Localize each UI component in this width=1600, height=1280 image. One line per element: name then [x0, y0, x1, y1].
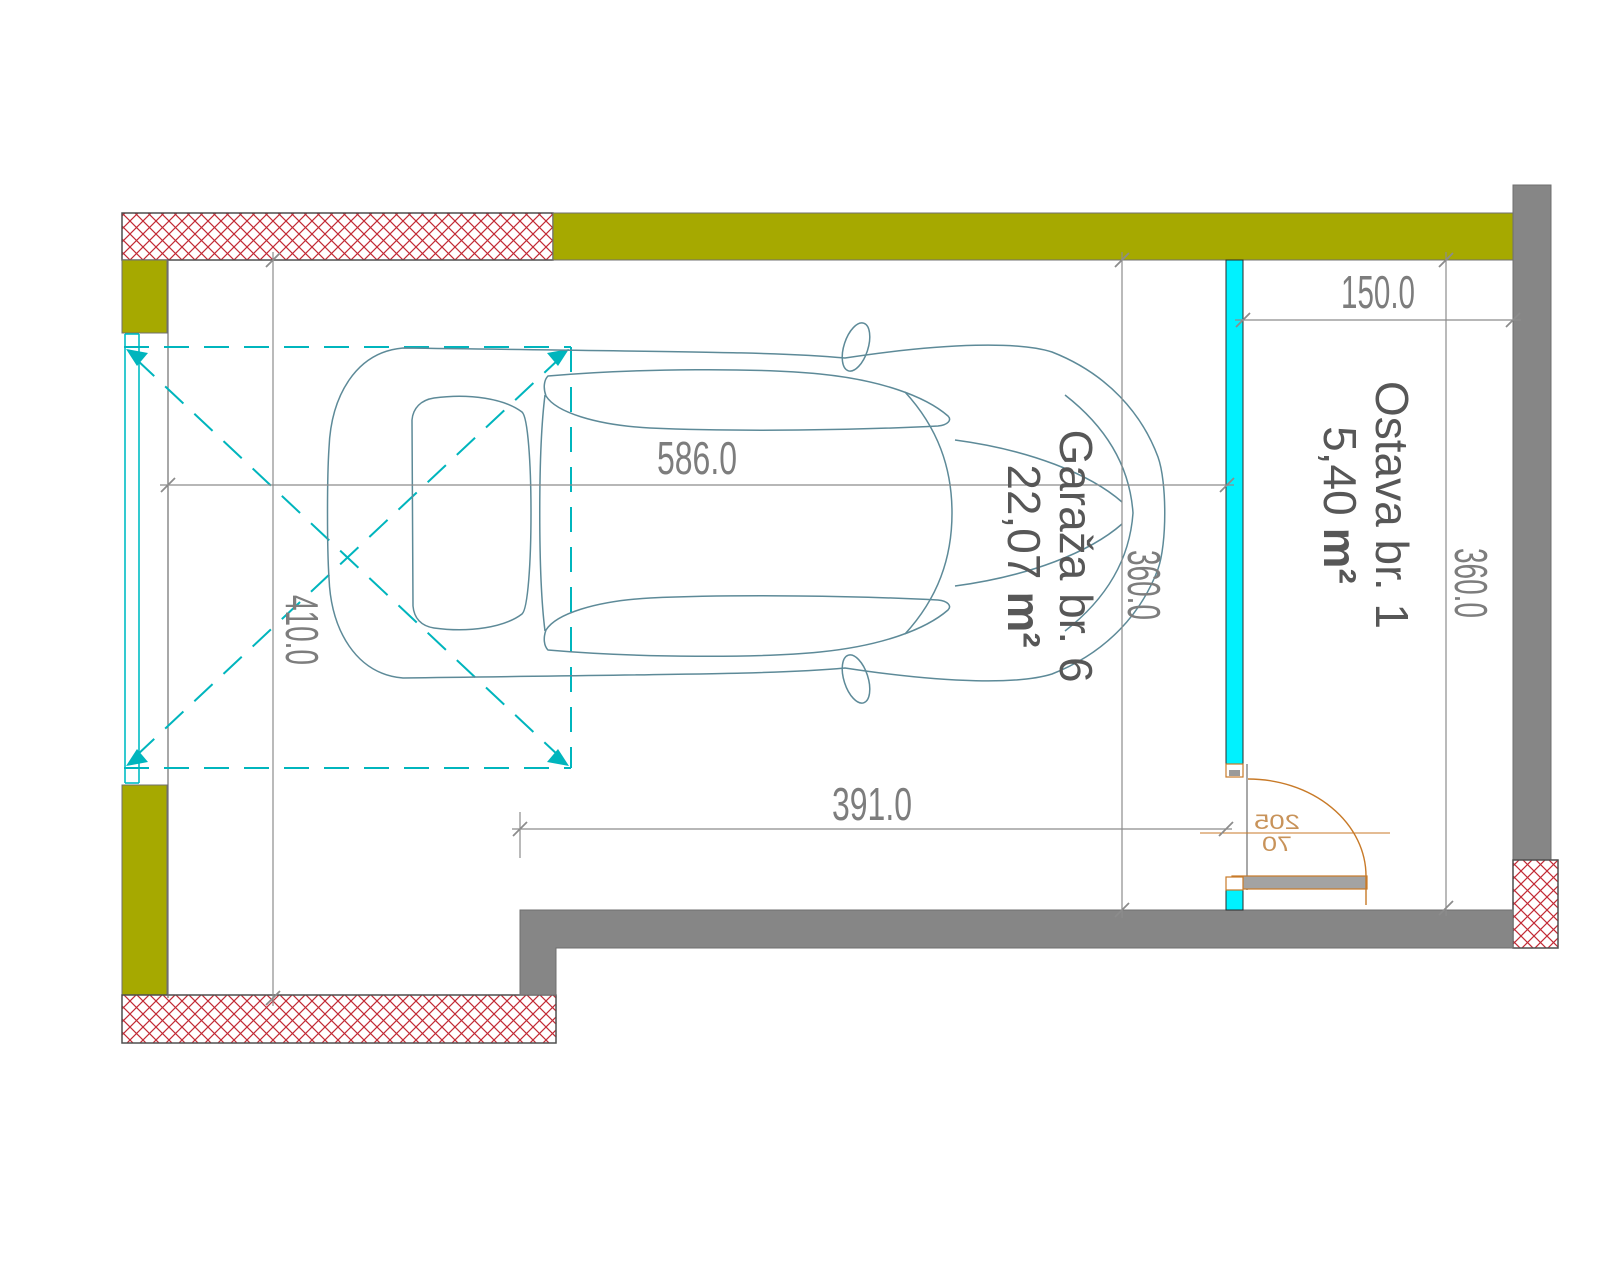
- parking-arrow-bottom-right: [547, 749, 569, 766]
- parking-arrow-top-right: [547, 349, 569, 366]
- dim-label-garage-length: 586.0: [657, 432, 737, 484]
- door-frame-block-bottom: [1226, 877, 1243, 890]
- parking-space-marking: [124, 347, 571, 768]
- dim-label-storage-width: 150.0: [1341, 266, 1415, 318]
- garage-area: 22,07m²: [998, 464, 1050, 647]
- floorplan-page: 205 70 586.0 391.0 150.0 410.0 360.0: [0, 0, 1600, 1280]
- floorplan-drawing: 205 70 586.0 391.0 150.0 410.0 360.0: [0, 0, 1600, 1280]
- car-mirror-top: [837, 320, 875, 375]
- wall-hatch-bottom-right: [1513, 860, 1558, 948]
- car-rear-window: [412, 396, 531, 630]
- room-label-storage: Ostava br. 1 5,40m²: [1314, 381, 1418, 629]
- wall-cyan-partition-upper: [1226, 260, 1243, 764]
- room-label-garage: Garaža br. 6 22,07m²: [998, 429, 1102, 682]
- storage-name: Ostava br. 1: [1366, 381, 1418, 629]
- door-height-label: 205: [1254, 811, 1300, 834]
- parking-arrow-bottom-left: [126, 749, 148, 766]
- car-windshield: [905, 392, 952, 634]
- wall-olive-left-lower: [122, 785, 167, 998]
- wall-hatch-bottom-left: [122, 995, 556, 1043]
- storage-area-unit: m²: [1314, 528, 1366, 584]
- wall-gray-bottom: [520, 910, 1513, 995]
- dim-label-garage-clear-length: 391.0: [832, 778, 912, 830]
- wall-cyan-partition-lower: [1226, 890, 1243, 910]
- dim-label-garage-depth: 360.0: [1118, 550, 1170, 620]
- dimensions: 586.0 391.0 150.0 410.0 360.0 360.0: [160, 252, 1521, 1006]
- dim-label-garage-width: 410.0: [276, 595, 328, 665]
- storage-area-value: 5,40: [1314, 426, 1366, 516]
- interior-door: 205 70: [1200, 764, 1390, 905]
- door-leaf: [1232, 876, 1367, 889]
- garage-area-unit: m²: [998, 591, 1050, 647]
- car-b-pillar: [540, 395, 545, 631]
- wall-olive-top: [553, 213, 1513, 260]
- wall-hatch-top-left: [122, 213, 553, 260]
- door-frame-block-top-inner: [1229, 770, 1240, 776]
- parking-arrow-top-left: [126, 349, 148, 366]
- garage-door: [125, 334, 139, 783]
- car-mirror-bottom: [837, 652, 875, 707]
- car-side-window-bottom: [544, 596, 949, 656]
- garage-name: Garaža br. 6: [1050, 429, 1102, 682]
- wall-gray-right: [1513, 185, 1551, 860]
- door-width-label: 70: [1262, 833, 1292, 856]
- door-size-label: 205 70: [1254, 811, 1300, 856]
- wall-olive-left-upper: [122, 260, 167, 333]
- dim-label-storage-depth: 360.0: [1445, 548, 1497, 618]
- car-side-window-top: [544, 370, 949, 430]
- storage-area: 5,40m²: [1314, 426, 1366, 584]
- dimension-ticks: [161, 253, 1520, 1005]
- room-labels: Garaža br. 6 22,07m² Ostava br. 1 5,40m²: [998, 381, 1418, 683]
- garage-area-value: 22,07: [998, 464, 1050, 579]
